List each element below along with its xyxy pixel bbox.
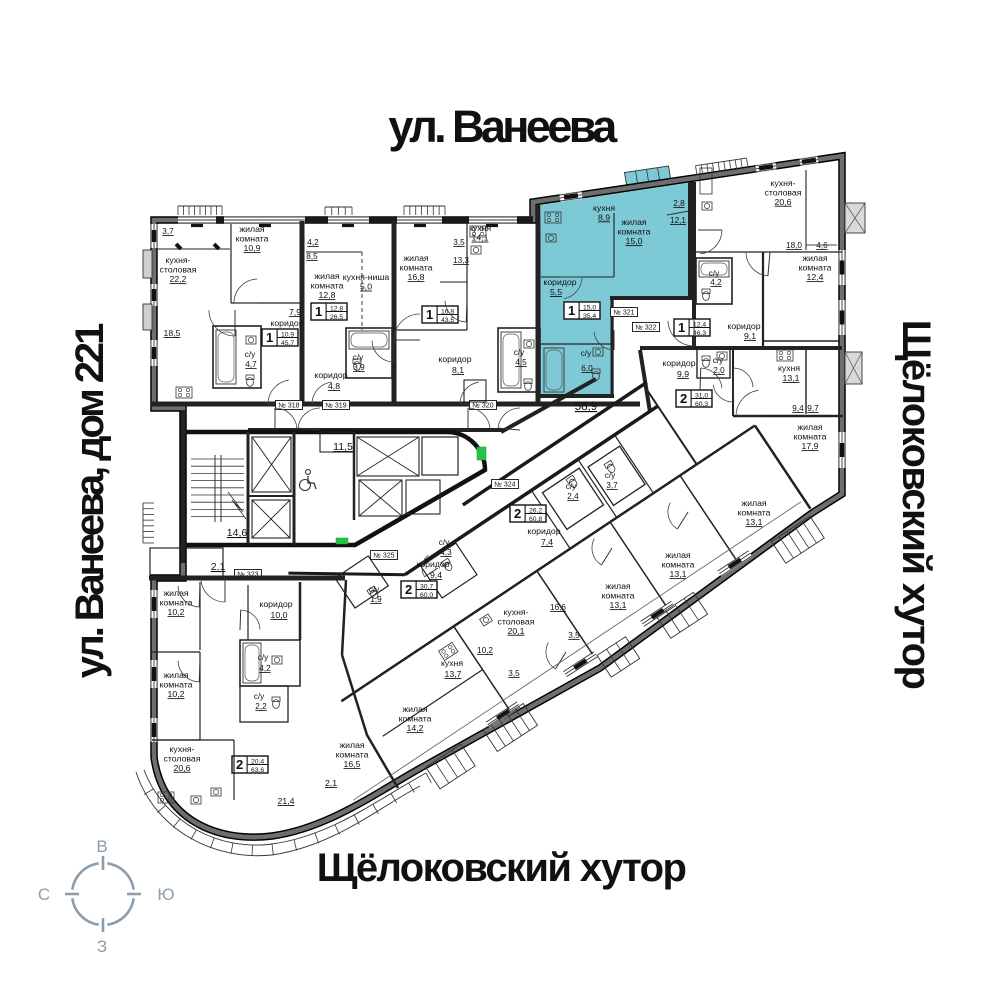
svg-text:16,5: 16,5 <box>344 759 361 769</box>
svg-text:жилая: жилая <box>239 224 265 234</box>
svg-text:коридор: коридор <box>270 318 303 328</box>
svg-text:14,6: 14,6 <box>227 527 248 539</box>
svg-text:комната: комната <box>662 560 695 570</box>
svg-text:16,8: 16,8 <box>408 272 425 282</box>
svg-text:с/у: с/у <box>605 471 616 480</box>
svg-text:1: 1 <box>678 320 685 335</box>
svg-text:жилая: жилая <box>403 253 429 263</box>
svg-text:43,5: 43,5 <box>441 317 454 324</box>
svg-text:4,2: 4,2 <box>307 238 319 247</box>
svg-text:комната: комната <box>236 234 269 244</box>
svg-text:№ 320: № 320 <box>472 403 493 410</box>
svg-text:с/у: с/у <box>245 350 256 359</box>
svg-text:жилая: жилая <box>402 704 428 714</box>
svg-text:коридор: коридор <box>662 358 695 368</box>
svg-text:комната: комната <box>400 263 433 273</box>
svg-text:с/у: с/у <box>713 356 724 365</box>
svg-text:жилая: жилая <box>621 217 647 227</box>
svg-text:13,1: 13,1 <box>610 600 627 610</box>
svg-text:с/у: с/у <box>439 538 450 547</box>
svg-text:7,9: 7,9 <box>289 307 301 317</box>
svg-text:комната: комната <box>160 598 193 608</box>
svg-text:комната: комната <box>336 750 369 760</box>
svg-text:Ю: Ю <box>157 885 174 904</box>
svg-text:15,0: 15,0 <box>626 236 643 246</box>
svg-text:26,2: 26,2 <box>529 507 542 514</box>
svg-text:15,0: 15,0 <box>583 304 596 311</box>
svg-text:З: З <box>97 937 107 956</box>
svg-text:31,0: 31,0 <box>695 392 708 399</box>
svg-text:комната: комната <box>602 591 635 601</box>
svg-text:столовая: столовая <box>160 265 197 275</box>
svg-text:2: 2 <box>514 506 521 521</box>
svg-text:1: 1 <box>568 303 575 318</box>
svg-text:жилая: жилая <box>605 581 631 591</box>
svg-text:2: 2 <box>236 757 243 772</box>
svg-text:жилая: жилая <box>802 253 828 263</box>
svg-text:3,7: 3,7 <box>606 481 618 490</box>
svg-text:№ 321: № 321 <box>613 310 634 317</box>
svg-text:8,1: 8,1 <box>452 365 464 375</box>
svg-text:6,0: 6,0 <box>581 364 593 373</box>
svg-text:60,3: 60,3 <box>695 401 708 408</box>
svg-text:№ 318: № 318 <box>278 403 299 410</box>
svg-text:жилая: жилая <box>797 422 823 432</box>
svg-text:20,6: 20,6 <box>775 197 792 207</box>
svg-text:с/у: с/у <box>566 482 577 491</box>
svg-text:10,9: 10,9 <box>244 243 261 253</box>
svg-text:с/у: с/у <box>353 353 364 362</box>
svg-text:18,0: 18,0 <box>786 241 802 250</box>
svg-text:кухня: кухня <box>778 363 800 373</box>
svg-text:20,6: 20,6 <box>174 763 191 773</box>
svg-text:4,3: 4,3 <box>440 548 452 557</box>
svg-text:жилая: жилая <box>741 498 767 508</box>
svg-text:комната: комната <box>160 680 193 690</box>
svg-text:12,4: 12,4 <box>807 272 824 282</box>
svg-text:16,8: 16,8 <box>441 308 454 315</box>
svg-text:ул. Ванеева: ул. Ванеева <box>388 101 618 152</box>
svg-text:13,1: 13,1 <box>746 517 763 527</box>
svg-text:22,2: 22,2 <box>170 274 187 284</box>
svg-text:12,8: 12,8 <box>330 305 343 312</box>
svg-text:2,8: 2,8 <box>673 199 685 208</box>
svg-text:10,0: 10,0 <box>271 610 288 620</box>
svg-text:58,9: 58,9 <box>575 401 597 413</box>
svg-text:12,1: 12,1 <box>670 216 686 225</box>
svg-text:46,3: 46,3 <box>693 330 706 337</box>
svg-text:жилая: жилая <box>314 271 340 281</box>
svg-text:1: 1 <box>315 304 322 319</box>
svg-text:10,9: 10,9 <box>281 331 294 338</box>
svg-text:Щёлоковский хутор: Щёлоковский хутор <box>317 846 686 890</box>
svg-text:2,1: 2,1 <box>211 561 226 573</box>
svg-text:с/у: с/у <box>369 585 380 594</box>
svg-text:№ 325: № 325 <box>373 553 394 560</box>
svg-text:21,4: 21,4 <box>278 796 295 806</box>
svg-text:1: 1 <box>266 330 273 345</box>
svg-text:жилая: жилая <box>339 740 365 750</box>
svg-text:3,9: 3,9 <box>353 363 365 372</box>
svg-text:коридор: коридор <box>416 559 449 569</box>
svg-text:13,3: 13,3 <box>453 256 469 265</box>
svg-text:2,2: 2,2 <box>255 702 267 711</box>
svg-text:5,0: 5,0 <box>360 282 372 292</box>
svg-text:жилая: жилая <box>163 588 189 598</box>
svg-text:2: 2 <box>680 391 687 406</box>
svg-text:2: 2 <box>405 582 412 597</box>
svg-text:кухня-ниша: кухня-ниша <box>343 272 390 282</box>
svg-text:кухня-: кухня- <box>166 255 191 265</box>
svg-text:комната: комната <box>618 227 651 237</box>
svg-text:с/у: с/у <box>258 653 269 662</box>
svg-text:с/у: с/у <box>581 349 592 358</box>
svg-text:комната: комната <box>738 508 771 518</box>
svg-text:коридор: коридор <box>527 526 560 536</box>
svg-text:14,2: 14,2 <box>407 723 424 733</box>
svg-text:20,4: 20,4 <box>251 758 264 765</box>
svg-text:9,9: 9,9 <box>677 369 689 379</box>
svg-text:3,5: 3,5 <box>508 669 520 678</box>
svg-text:10,2: 10,2 <box>168 689 185 699</box>
svg-text:16,6: 16,6 <box>550 603 566 612</box>
svg-text:20,1: 20,1 <box>508 626 525 636</box>
svg-text:№ 324: № 324 <box>494 482 515 489</box>
svg-text:18,5: 18,5 <box>164 328 181 338</box>
svg-text:9,7: 9,7 <box>807 404 819 413</box>
svg-text:коридор: коридор <box>543 277 576 287</box>
svg-text:7,4: 7,4 <box>541 537 553 547</box>
svg-text:45,7: 45,7 <box>281 340 294 347</box>
svg-text:8,5: 8,5 <box>306 252 318 261</box>
svg-text:10,2: 10,2 <box>168 607 185 617</box>
svg-text:комната: комната <box>311 281 344 291</box>
svg-text:жилая: жилая <box>665 550 691 560</box>
svg-text:2,4: 2,4 <box>567 492 579 501</box>
svg-text:60,8: 60,8 <box>529 516 542 523</box>
svg-text:4,2: 4,2 <box>259 664 271 673</box>
svg-text:13,7: 13,7 <box>445 669 462 679</box>
svg-text:10,2: 10,2 <box>477 646 493 655</box>
svg-text:3,5: 3,5 <box>568 631 580 640</box>
svg-text:с/у: с/у <box>254 692 265 701</box>
svg-text:В: В <box>96 837 107 856</box>
svg-text:17,9: 17,9 <box>802 441 819 451</box>
svg-text:коридор: коридор <box>259 599 292 609</box>
svg-text:9,1: 9,1 <box>744 331 756 341</box>
svg-text:35,4: 35,4 <box>583 313 596 320</box>
svg-text:11,5: 11,5 <box>333 441 353 453</box>
svg-text:5,5: 5,5 <box>550 287 562 297</box>
svg-text:с/у: с/у <box>709 269 720 278</box>
svg-text:3,5: 3,5 <box>453 238 465 247</box>
svg-text:коридор: коридор <box>438 354 471 364</box>
svg-text:ул. Ванеева, дом 221: ул. Ванеева, дом 221 <box>68 323 112 678</box>
svg-text:4,6: 4,6 <box>816 241 828 250</box>
svg-text:коридор: коридор <box>314 370 347 380</box>
svg-text:коридор: коридор <box>727 321 760 331</box>
svg-text:№ 319: № 319 <box>325 403 346 410</box>
svg-text:4,5: 4,5 <box>515 358 527 367</box>
svg-text:13,1: 13,1 <box>783 373 800 383</box>
svg-text:1,9: 1,9 <box>370 595 382 604</box>
svg-text:30,7: 30,7 <box>420 583 433 590</box>
svg-text:3,7: 3,7 <box>162 227 174 236</box>
svg-text:1: 1 <box>426 307 433 322</box>
svg-text:4,7: 4,7 <box>245 360 257 369</box>
svg-text:жилая: жилая <box>163 670 189 680</box>
svg-text:комната: комната <box>799 263 832 273</box>
svg-text:9,4: 9,4 <box>792 404 804 413</box>
svg-text:комната: комната <box>794 432 827 442</box>
svg-text:с/у: с/у <box>514 348 525 357</box>
svg-text:2,1: 2,1 <box>325 778 337 788</box>
svg-text:63,6: 63,6 <box>251 767 264 774</box>
svg-text:4,2: 4,2 <box>710 278 722 287</box>
svg-text:№ 322: № 322 <box>635 325 656 332</box>
svg-text:13,1: 13,1 <box>670 569 687 579</box>
svg-text:26,5: 26,5 <box>330 314 343 321</box>
svg-text:12,8: 12,8 <box>319 290 336 300</box>
svg-text:Щёлоковский хутор: Щёлоковский хутор <box>894 320 938 689</box>
svg-text:С: С <box>38 885 50 904</box>
svg-text:8,9: 8,9 <box>598 212 610 222</box>
svg-text:комната: комната <box>399 714 432 724</box>
svg-text:12,4: 12,4 <box>693 321 706 328</box>
svg-text:60,0: 60,0 <box>420 592 433 599</box>
